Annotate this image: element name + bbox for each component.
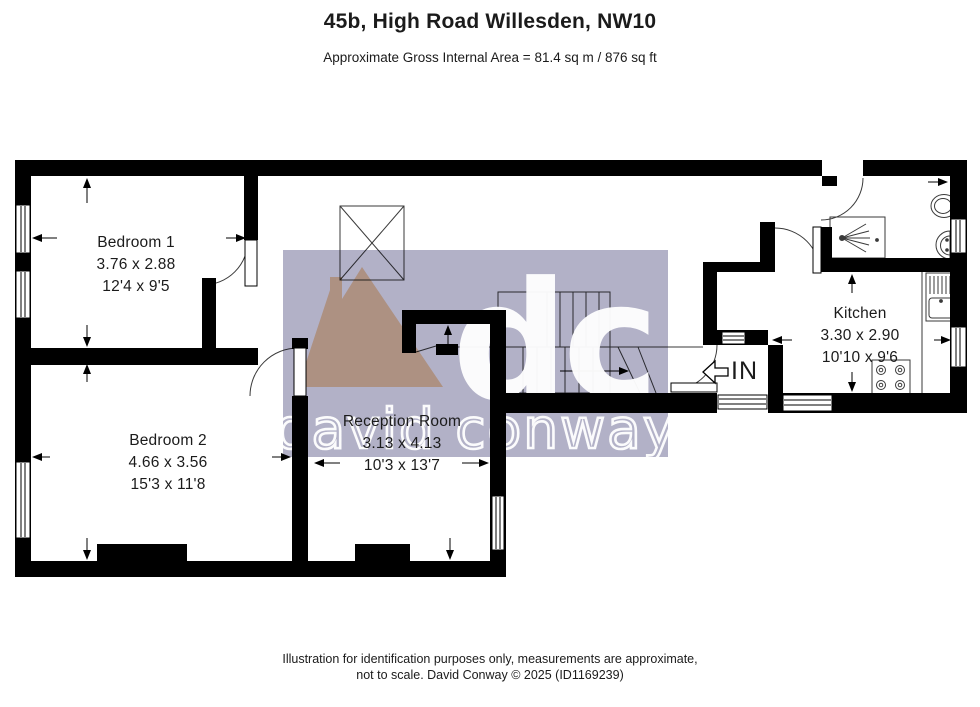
room-size-imperial: 12'4 x 9'5 <box>97 276 176 298</box>
entrance-arrow-icon <box>703 361 728 383</box>
dimension-arrow <box>83 538 91 560</box>
room-name: Bedroom 1 <box>97 232 176 254</box>
window-symbol <box>783 395 832 411</box>
wall-kitchen-left <box>768 345 783 393</box>
dimension-arrow <box>83 364 91 382</box>
dimension-arrow <box>32 453 50 461</box>
room-label-bedroom1: Bedroom 1 3.76 x 2.88 12'4 x 9'5 <box>97 232 176 297</box>
room-size-imperial: 10'3 x 13'7 <box>343 455 461 477</box>
room-label-reception: Reception Room 3.13 x 4.13 10'3 x 13'7 <box>343 411 461 476</box>
window-symbol <box>492 496 504 550</box>
walls <box>15 160 967 577</box>
dimension-arrow <box>772 336 792 344</box>
dimension-arrow <box>226 234 246 242</box>
dimension-arrow <box>83 178 91 203</box>
wall-bathroom-bottom <box>817 258 950 272</box>
wall-bottom-left <box>15 561 506 577</box>
wall-bathroom-step <box>822 176 837 186</box>
room-label-kitchen: Kitchen 3.30 x 2.90 10'10 x 9'6 <box>821 303 900 368</box>
window-symbol <box>16 462 30 538</box>
wall-bedroom2-nub <box>292 338 308 349</box>
dimension-arrow <box>83 325 91 347</box>
room-name: Kitchen <box>821 303 900 325</box>
chimney-breast <box>355 544 410 562</box>
wall-bedroom1-right <box>244 176 258 240</box>
room-size-metric: 4.66 x 3.56 <box>129 452 208 474</box>
door-leaf-bedroom1 <box>245 240 257 286</box>
watermark: dc david conway <box>275 248 678 461</box>
basin-icon <box>936 231 950 259</box>
entrance-threshold <box>718 395 767 409</box>
shower-icon <box>830 217 885 258</box>
dimension-arrow <box>928 178 948 186</box>
wall-bedroom1-stub <box>202 278 216 351</box>
door-leaf-lobby <box>813 227 821 273</box>
dimension-arrow <box>848 372 856 392</box>
footer-line2: not to scale. David Conway © 2025 (ID116… <box>0 667 980 683</box>
wall-lobby <box>760 222 775 272</box>
wall-reception-block <box>436 344 458 355</box>
entrance-label: IN <box>731 357 758 386</box>
footer-disclaimer: Illustration for identification purposes… <box>0 651 980 683</box>
wall-right <box>950 160 967 413</box>
room-name: Bedroom 2 <box>129 430 208 452</box>
window-symbol <box>951 327 966 367</box>
dimension-arrow <box>934 336 951 344</box>
room-size-imperial: 15'3 x 11'8 <box>129 474 208 496</box>
chimney-breast <box>97 544 187 562</box>
room-label-bedroom2: Bedroom 2 4.66 x 3.56 15'3 x 11'8 <box>129 430 208 495</box>
door-leaf-bedroom2 <box>294 348 306 396</box>
window-symbol <box>16 205 30 253</box>
wall-corridor <box>703 262 717 345</box>
dimension-arrow <box>32 234 57 242</box>
dimension-arrow <box>446 538 454 560</box>
wall-reception-stub <box>402 310 416 353</box>
room-size-imperial: 10'10 x 9'6 <box>821 347 900 369</box>
wall-top-left <box>15 160 822 176</box>
window-symbol <box>722 332 745 344</box>
window-symbol <box>951 219 966 253</box>
room-size-metric: 3.30 x 2.90 <box>821 325 900 347</box>
door-leaf-entrance <box>671 383 717 392</box>
wall-bottom-middle <box>498 393 717 413</box>
window-symbol <box>16 271 30 318</box>
room-size-metric: 3.13 x 4.13 <box>343 433 461 455</box>
room-name: Reception Room <box>343 411 461 433</box>
footer-line1: Illustration for identification purposes… <box>0 651 980 667</box>
wall-bedroom-divider <box>15 348 258 365</box>
dimension-arrow <box>848 274 856 293</box>
wall-bedroom2-right <box>292 396 308 562</box>
room-size-metric: 3.76 x 2.88 <box>97 254 176 276</box>
